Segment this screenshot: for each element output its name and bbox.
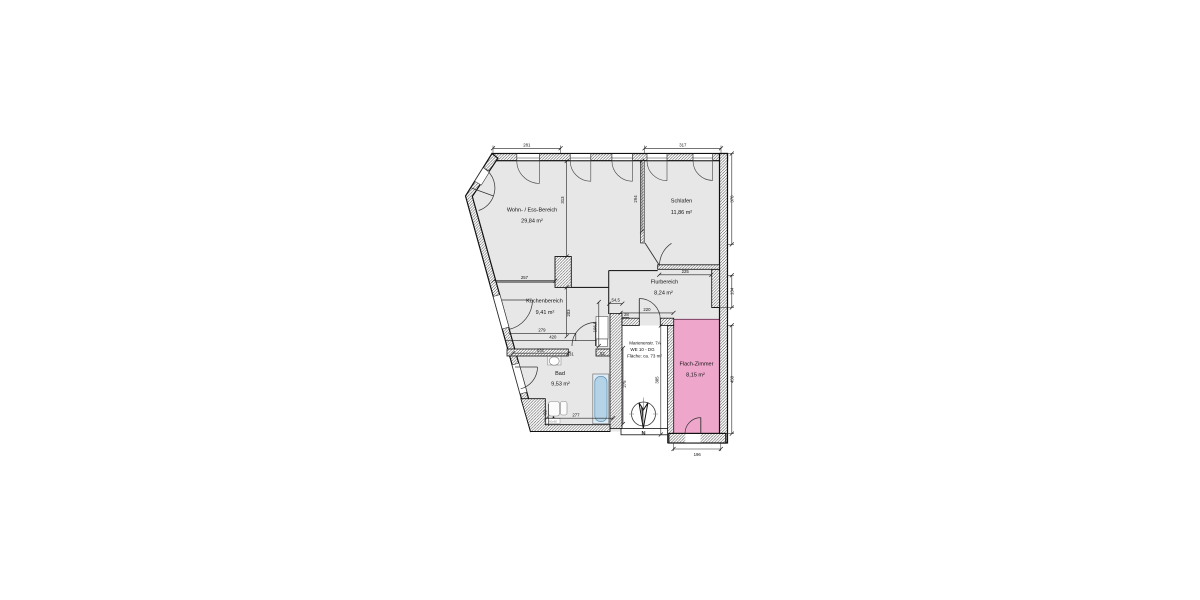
svg-text:281: 281 (523, 143, 531, 148)
svg-text:313: 313 (560, 196, 565, 204)
svg-text:54,5: 54,5 (612, 298, 621, 303)
svg-text:277: 277 (572, 412, 580, 417)
svg-text:Küchenbereich: Küchenbereich (526, 299, 563, 305)
svg-text:Flurbereich: Flurbereich (651, 280, 679, 286)
svg-text:60x60: 60x60 (549, 419, 558, 423)
svg-text:31: 31 (569, 351, 574, 356)
svg-text:275: 275 (622, 380, 627, 388)
svg-text:196: 196 (694, 452, 702, 457)
svg-text:28: 28 (624, 312, 629, 317)
svg-text:134: 134 (730, 287, 735, 295)
svg-text:279: 279 (538, 327, 546, 332)
svg-text:Wohn- / Ess-Bereich: Wohn- / Ess-Bereich (507, 208, 557, 214)
svg-text:317: 317 (679, 143, 687, 148)
svg-text:11,86 m²: 11,86 m² (671, 210, 692, 216)
svg-text:Fläche: ca. 73 m²: Fläche: ca. 73 m² (627, 354, 662, 359)
svg-text:N: N (641, 431, 645, 437)
svg-text:WE 10 - DG: WE 10 - DG (630, 347, 655, 352)
svg-text:52: 52 (600, 351, 605, 356)
svg-text:9,41 m²: 9,41 m² (536, 310, 555, 316)
svg-text:Marienenstr. 7A: Marienenstr. 7A (629, 341, 661, 346)
svg-text:203: 203 (566, 309, 571, 317)
svg-text:257: 257 (521, 275, 529, 280)
svg-text:92: 92 (542, 410, 547, 415)
svg-text:196,5: 196,5 (593, 321, 598, 332)
svg-text:385: 385 (655, 376, 660, 384)
svg-text:8,15 m²: 8,15 m² (686, 373, 705, 379)
svg-text:378: 378 (730, 195, 735, 203)
svg-text:231: 231 (537, 347, 545, 352)
svg-text:294: 294 (633, 195, 638, 203)
svg-text:8,24 m²: 8,24 m² (654, 291, 673, 297)
svg-text:450: 450 (730, 375, 735, 383)
svg-text:Flach-Zimmer: Flach-Zimmer (680, 362, 714, 368)
svg-text:Schlafen: Schlafen (671, 199, 692, 205)
svg-text:Bad: Bad (555, 371, 565, 377)
svg-text:29,84 m²: 29,84 m² (521, 219, 543, 225)
svg-text:420: 420 (549, 335, 557, 340)
svg-text:220: 220 (643, 307, 651, 312)
svg-text:9,53 m²: 9,53 m² (551, 382, 570, 388)
svg-text:225: 225 (682, 269, 690, 274)
